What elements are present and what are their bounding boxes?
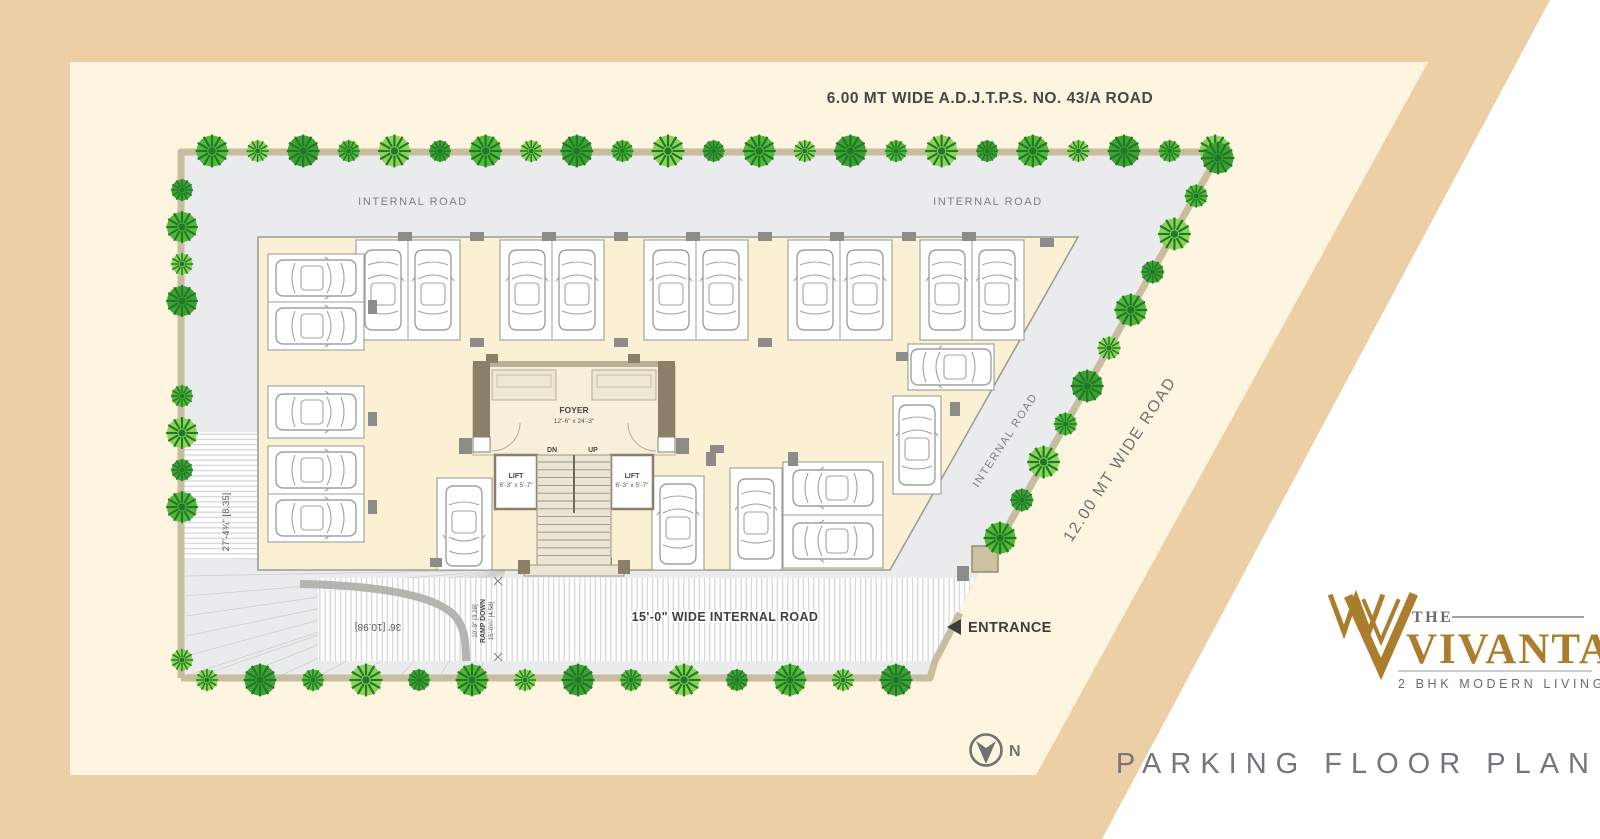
column [962, 232, 976, 241]
column [459, 438, 472, 454]
foyer-top-wall [473, 361, 675, 367]
car-icon [657, 484, 699, 564]
foyer-label: FOYER [559, 405, 588, 415]
car-icon [793, 467, 873, 509]
car-icon [412, 250, 454, 330]
ramp-lane-dim-1: 10'-9" [3.28] [472, 604, 479, 638]
lift-right-dimension: 6'-3" x 5'-7" [615, 482, 649, 489]
wall-stub-left [486, 354, 498, 363]
logo-tagline: 2 BHK MODERN LIVING [1398, 677, 1600, 691]
stairs-up-label: UP [588, 447, 598, 454]
car-icon [911, 346, 991, 388]
ramp-width-dimension: 36' [10.98] [355, 621, 402, 632]
column [950, 402, 960, 416]
column [902, 232, 916, 241]
bottom-road-label: 15'-0" WIDE INTERNAL ROAD [632, 610, 819, 624]
column [398, 232, 412, 241]
car-icon [926, 250, 968, 330]
column [470, 338, 484, 347]
car-icon [844, 250, 886, 330]
internal-road-label-left: INTERNAL ROAD [358, 196, 468, 208]
column [614, 338, 628, 347]
parking-floor-plan-page: 6.00 MT WIDE A.D.J.T.P.S. NO. 43/A ROAD … [0, 0, 1600, 839]
foyer-wall-right [658, 361, 675, 447]
car-icon [700, 250, 742, 330]
column [1040, 238, 1054, 247]
column [614, 232, 628, 241]
column [710, 445, 724, 453]
column [758, 338, 772, 347]
logo-name: VIVANTA [1406, 626, 1600, 673]
car-icon [650, 250, 692, 330]
column [676, 438, 689, 454]
column [368, 300, 377, 314]
car-icon [276, 305, 356, 347]
landing-stub-right [618, 560, 630, 574]
column [686, 232, 700, 241]
north-label: N [1009, 743, 1021, 760]
column [830, 232, 844, 241]
car-icon [896, 405, 938, 485]
car-icon [443, 486, 485, 566]
column [430, 558, 442, 567]
niche-left [473, 437, 490, 452]
car-icon [276, 449, 356, 491]
lift-left-label: LIFT [509, 473, 524, 480]
column [368, 412, 377, 426]
foyer-dimension: 12'-6" x 24'-3" [554, 418, 595, 425]
stair-landing [524, 565, 624, 576]
stairs-dn-label: DN [547, 447, 557, 454]
car-icon [556, 250, 598, 330]
column [706, 452, 716, 466]
column [896, 352, 908, 361]
logo-the: THE [1412, 609, 1453, 626]
entrance-label: ENTRANCE [968, 620, 1052, 636]
car-icon [793, 520, 873, 562]
page-title: PARKING FLOOR PLAN [1116, 748, 1598, 780]
internal-road-label-right: INTERNAL ROAD [933, 196, 1043, 208]
lift-left-dimension: 6'-3" x 5'-7" [499, 482, 533, 489]
ramp-down-label: RAMP DOWN [480, 599, 487, 643]
car-icon [794, 250, 836, 330]
column [788, 452, 798, 466]
car-icon [506, 250, 548, 330]
gate-pillar [957, 566, 969, 581]
column [542, 232, 556, 241]
column [758, 232, 772, 241]
foyer-wall-left [473, 361, 490, 447]
lift-right-label: LIFT [625, 473, 640, 480]
floor-plan-canvas: 6.00 MT WIDE A.D.J.T.P.S. NO. 43/A ROAD … [0, 0, 1600, 839]
car-icon [735, 479, 777, 559]
car-icon [276, 497, 356, 539]
column [368, 500, 377, 514]
left-strip-dimension: 27'-4¾" [8.35] [221, 493, 232, 552]
niche-right [658, 437, 675, 452]
car-icon [976, 250, 1018, 330]
top-road-label: 6.00 MT WIDE A.D.J.T.P.S. NO. 43/A ROAD [827, 90, 1153, 107]
car-icon [276, 391, 356, 433]
wall-stub-right [628, 354, 640, 363]
column [470, 232, 484, 241]
car-icon [276, 257, 356, 299]
landing-stub-left [518, 560, 530, 574]
ramp-lane-dim-2: 15'-0¼" [4.58] [488, 601, 495, 640]
car-icon [362, 250, 404, 330]
